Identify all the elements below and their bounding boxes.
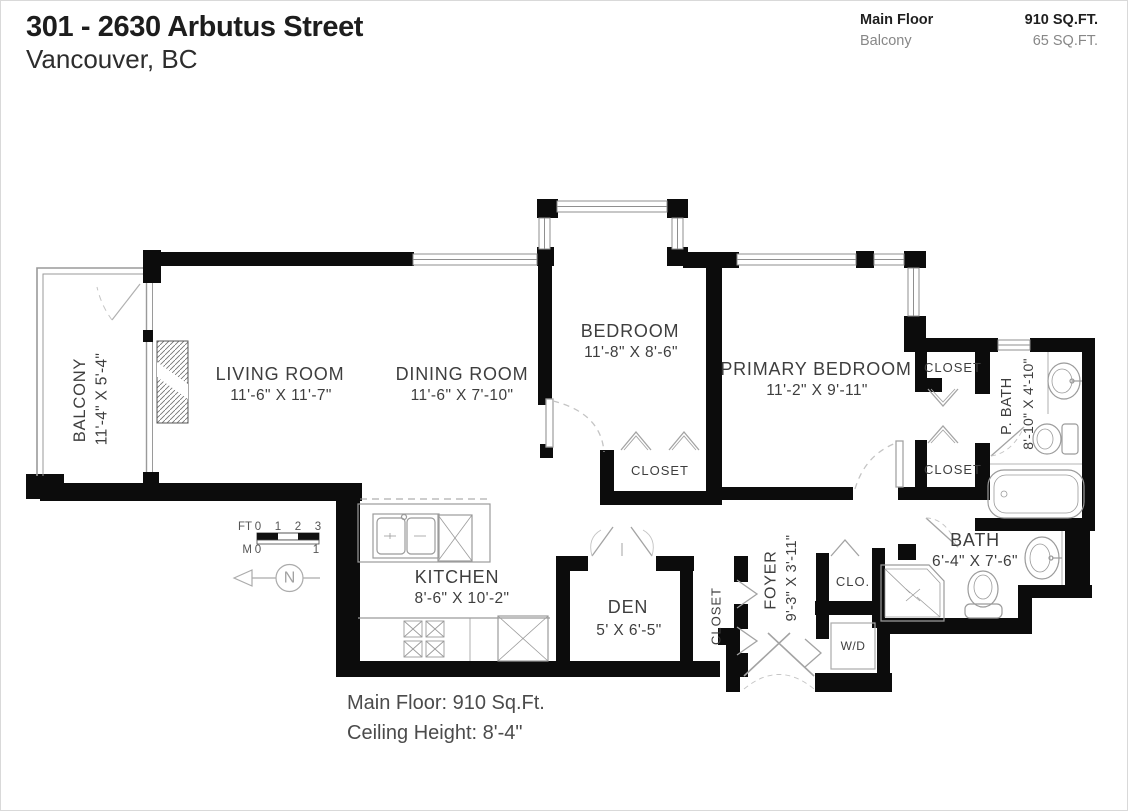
- kitchen-stove: [404, 621, 444, 657]
- room-label-dining: DINING ROOM: [396, 364, 529, 384]
- window-primary-2: [874, 254, 904, 265]
- kitchen-fridge: [498, 616, 548, 661]
- room-dims-den: 5' X 6'-5": [596, 622, 661, 639]
- room-label-closet-bedroom: CLOSET: [631, 463, 689, 478]
- window-bedroom-bay-top: [557, 201, 667, 212]
- bathtub: [988, 470, 1084, 518]
- window-primary-1: [737, 254, 856, 265]
- window-dining: [413, 254, 537, 265]
- room-label-den: DEN: [608, 597, 648, 617]
- room-label-bedroom: BEDROOM: [581, 321, 680, 341]
- north-label: N: [284, 570, 296, 587]
- room-dims-balcony: 11'-4" X 5'-4": [94, 353, 111, 445]
- room-dims-primary: 11'-2" X 9'-11": [766, 382, 868, 399]
- balcony-door: [97, 284, 140, 320]
- window-bedroom-bay-left: [539, 218, 550, 249]
- room-label-closet-lower: CLOSET: [924, 462, 982, 477]
- room-label-foyer: FOYER: [763, 550, 780, 609]
- footer-notes: Main Floor: 910 Sq.Ft. Ceiling Height: 8…: [347, 688, 545, 748]
- room-label-pbath: P. BATH: [999, 377, 1015, 435]
- room-label-closet-den: CLOSET: [709, 587, 724, 645]
- room-label-primary: PRIMARY BEDROOM: [720, 359, 911, 379]
- scale-bar: FT 0 1 2 3 M 0 1: [238, 521, 321, 556]
- room-label-kitchen: KITCHEN: [415, 567, 500, 587]
- window-primary-side: [908, 268, 919, 316]
- scale-ft-1: 1: [275, 521, 281, 533]
- room-dims-kitchen: 8'-6" X 10'-2": [415, 590, 510, 607]
- room-dims-living: 11'-6" X 11'-7": [230, 387, 332, 404]
- north-arrow: N: [234, 565, 320, 592]
- room-label-closet-upper: CLOSET: [924, 360, 982, 375]
- room-label-living: LIVING ROOM: [216, 364, 345, 384]
- room-dims-bedroom: 11'-8" X 8'-6": [584, 344, 678, 361]
- room-label-wd: W/D: [841, 639, 866, 653]
- kitchen-counter-top: [358, 499, 490, 562]
- fireplace: [157, 341, 188, 423]
- room-dims-bath: 6'-4" X 7'-6": [932, 553, 1018, 570]
- footer-ceiling: Ceiling Height: 8'-4": [347, 718, 545, 748]
- room-label-balcony: BALCONY: [71, 358, 89, 442]
- walls-layer: [26, 199, 1095, 692]
- kitchen-counter-bottom: [358, 616, 550, 661]
- pbath-toilet: [1033, 424, 1078, 454]
- bath-sink: [1025, 531, 1062, 585]
- scale-ft-3: 3: [315, 521, 321, 533]
- footer-area: Main Floor: 910 Sq.Ft.: [347, 688, 545, 718]
- scale-m-label: M: [242, 544, 252, 556]
- room-label-clo: CLO.: [836, 574, 870, 589]
- window-bedroom-bay-right: [672, 218, 683, 249]
- room-dims-foyer: 9'-3" X 3'-11": [784, 535, 800, 622]
- floor-plan: FT 0 1 2 3 M 0 1 N BALCONY 11'-4" X 5'-4…: [0, 0, 1128, 811]
- room-dims-dining: 11'-6" X 7'-10": [411, 387, 514, 404]
- room-label-bath: BATH: [950, 530, 1000, 550]
- pbath-sink: [1048, 352, 1082, 414]
- window-pbath: [998, 340, 1030, 350]
- bath-toilet: [965, 571, 1002, 618]
- scale-ft-label: FT: [238, 521, 252, 533]
- shower: [881, 565, 944, 621]
- scale-ft-2: 2: [295, 521, 301, 533]
- scale-m-1: 1: [313, 544, 319, 556]
- scale-m-0: 0: [255, 544, 261, 556]
- room-dims-pbath: 8'-10" X 4'-10": [1020, 358, 1036, 449]
- scale-ft-0: 0: [255, 521, 261, 533]
